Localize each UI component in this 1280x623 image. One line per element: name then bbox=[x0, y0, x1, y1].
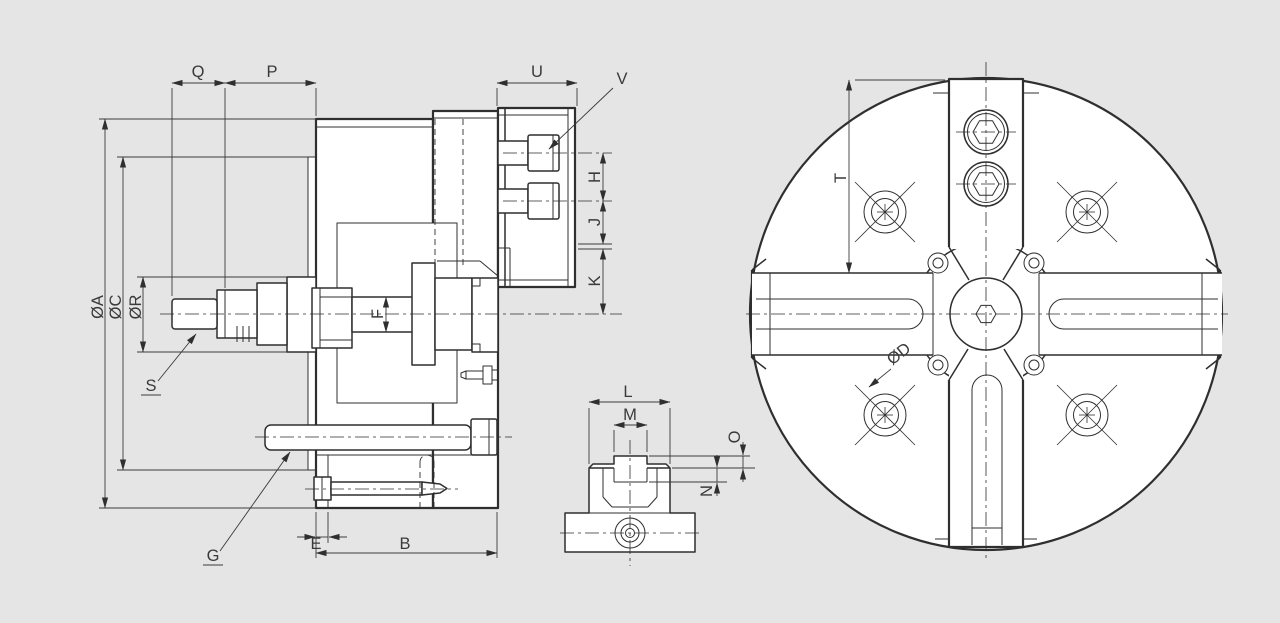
set-screw-tip bbox=[461, 371, 466, 379]
lower-bolt-shank bbox=[331, 482, 422, 495]
dim-label-q: Q bbox=[192, 63, 205, 81]
dim-label-f: F bbox=[369, 309, 387, 319]
dim-label-h: H bbox=[586, 171, 604, 183]
dim-label-j: J bbox=[586, 218, 604, 226]
dim-label-l: L bbox=[623, 383, 632, 401]
master-jaw bbox=[472, 278, 498, 352]
mounting-rod bbox=[265, 425, 471, 450]
dim-label-phi-a: ØA bbox=[89, 295, 107, 319]
mounting-hole bbox=[855, 182, 915, 242]
set-screw-head bbox=[483, 366, 492, 384]
dim-label-e: E bbox=[310, 535, 321, 553]
dim-label-o: O bbox=[726, 430, 744, 443]
dim-label-n: N bbox=[698, 485, 716, 497]
set-screw-shank bbox=[466, 371, 483, 379]
dim-label-b: B bbox=[399, 535, 410, 553]
dim-label-phi-r: ØR bbox=[127, 295, 145, 320]
dim-label-phi-c: ØC bbox=[107, 295, 125, 320]
dim-label-m: M bbox=[623, 406, 637, 424]
technical-drawing-sheet: Q P U V H J K ØA ØC ØR F S bbox=[0, 0, 1280, 623]
dim-label-p: P bbox=[266, 63, 277, 81]
dim-label-t: T bbox=[832, 173, 850, 183]
mounting-hole bbox=[855, 385, 915, 445]
mounting-hole bbox=[1057, 182, 1117, 242]
ref-label-s: S bbox=[145, 377, 156, 395]
mounting-hole bbox=[1057, 385, 1117, 445]
ref-label-g: G bbox=[207, 547, 220, 565]
dim-label-u: U bbox=[531, 63, 543, 81]
dim-label-k: K bbox=[586, 275, 604, 286]
chuck-drawing: Q P U V H J K ØA ØC ØR F S bbox=[0, 0, 1280, 623]
dim-label-v: V bbox=[616, 70, 627, 88]
